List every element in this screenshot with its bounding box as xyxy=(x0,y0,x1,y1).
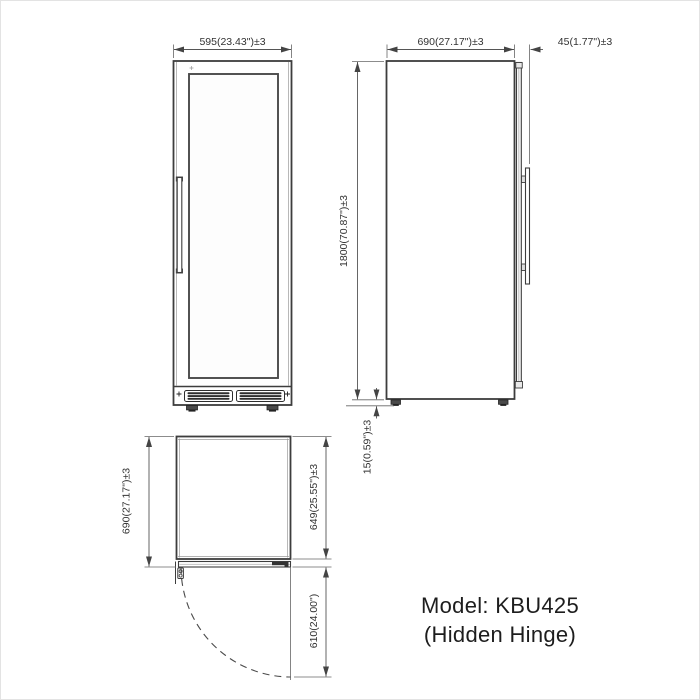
top-cabinet-outline xyxy=(177,437,291,560)
vent-grille-right xyxy=(237,391,285,402)
side-door-dim-label: 45(1.77")±3 xyxy=(558,36,613,48)
top-hinge-pin xyxy=(285,564,289,566)
door-swing-arc xyxy=(181,567,291,677)
side-view xyxy=(346,45,543,419)
side-handle-bar xyxy=(526,168,530,284)
side-height-dim-label: 1800(70.87")±3 xyxy=(338,195,350,267)
front-view xyxy=(174,45,292,412)
side-hinge-top xyxy=(516,63,522,69)
side-depth-dim-label: 690(27.17")±3 xyxy=(417,36,483,48)
side-feet xyxy=(391,400,508,406)
top-depth-dim-label: 690(27.17")±3 xyxy=(121,468,133,534)
front-width-dim-label: 595(23.43")±3 xyxy=(199,36,265,48)
top-view xyxy=(145,437,332,681)
side-foot-dim-label: 15(0.59")±3 xyxy=(362,420,374,475)
model-title: Model: KBU425 xyxy=(421,593,579,618)
side-hinge-bottom xyxy=(515,382,522,389)
dimension-diagram: 595(23.43")±3 690(27.17")±3 45(1.77")±3 … xyxy=(0,0,700,700)
top-cabinet-depth-dim-label: 649(25.55")±3 xyxy=(308,464,320,530)
model-subtitle: (Hidden Hinge) xyxy=(424,622,576,647)
top-swing-dim-label: 610(24.00") xyxy=(308,594,320,649)
diagram-svg: 595(23.43")±3 690(27.17")±3 45(1.77")±3 … xyxy=(1,1,699,699)
vent-grille-left xyxy=(185,391,233,402)
side-cabinet-outline xyxy=(387,61,515,399)
front-feet xyxy=(187,406,279,412)
front-glass-door xyxy=(189,74,278,378)
front-handle-bar xyxy=(177,178,182,273)
